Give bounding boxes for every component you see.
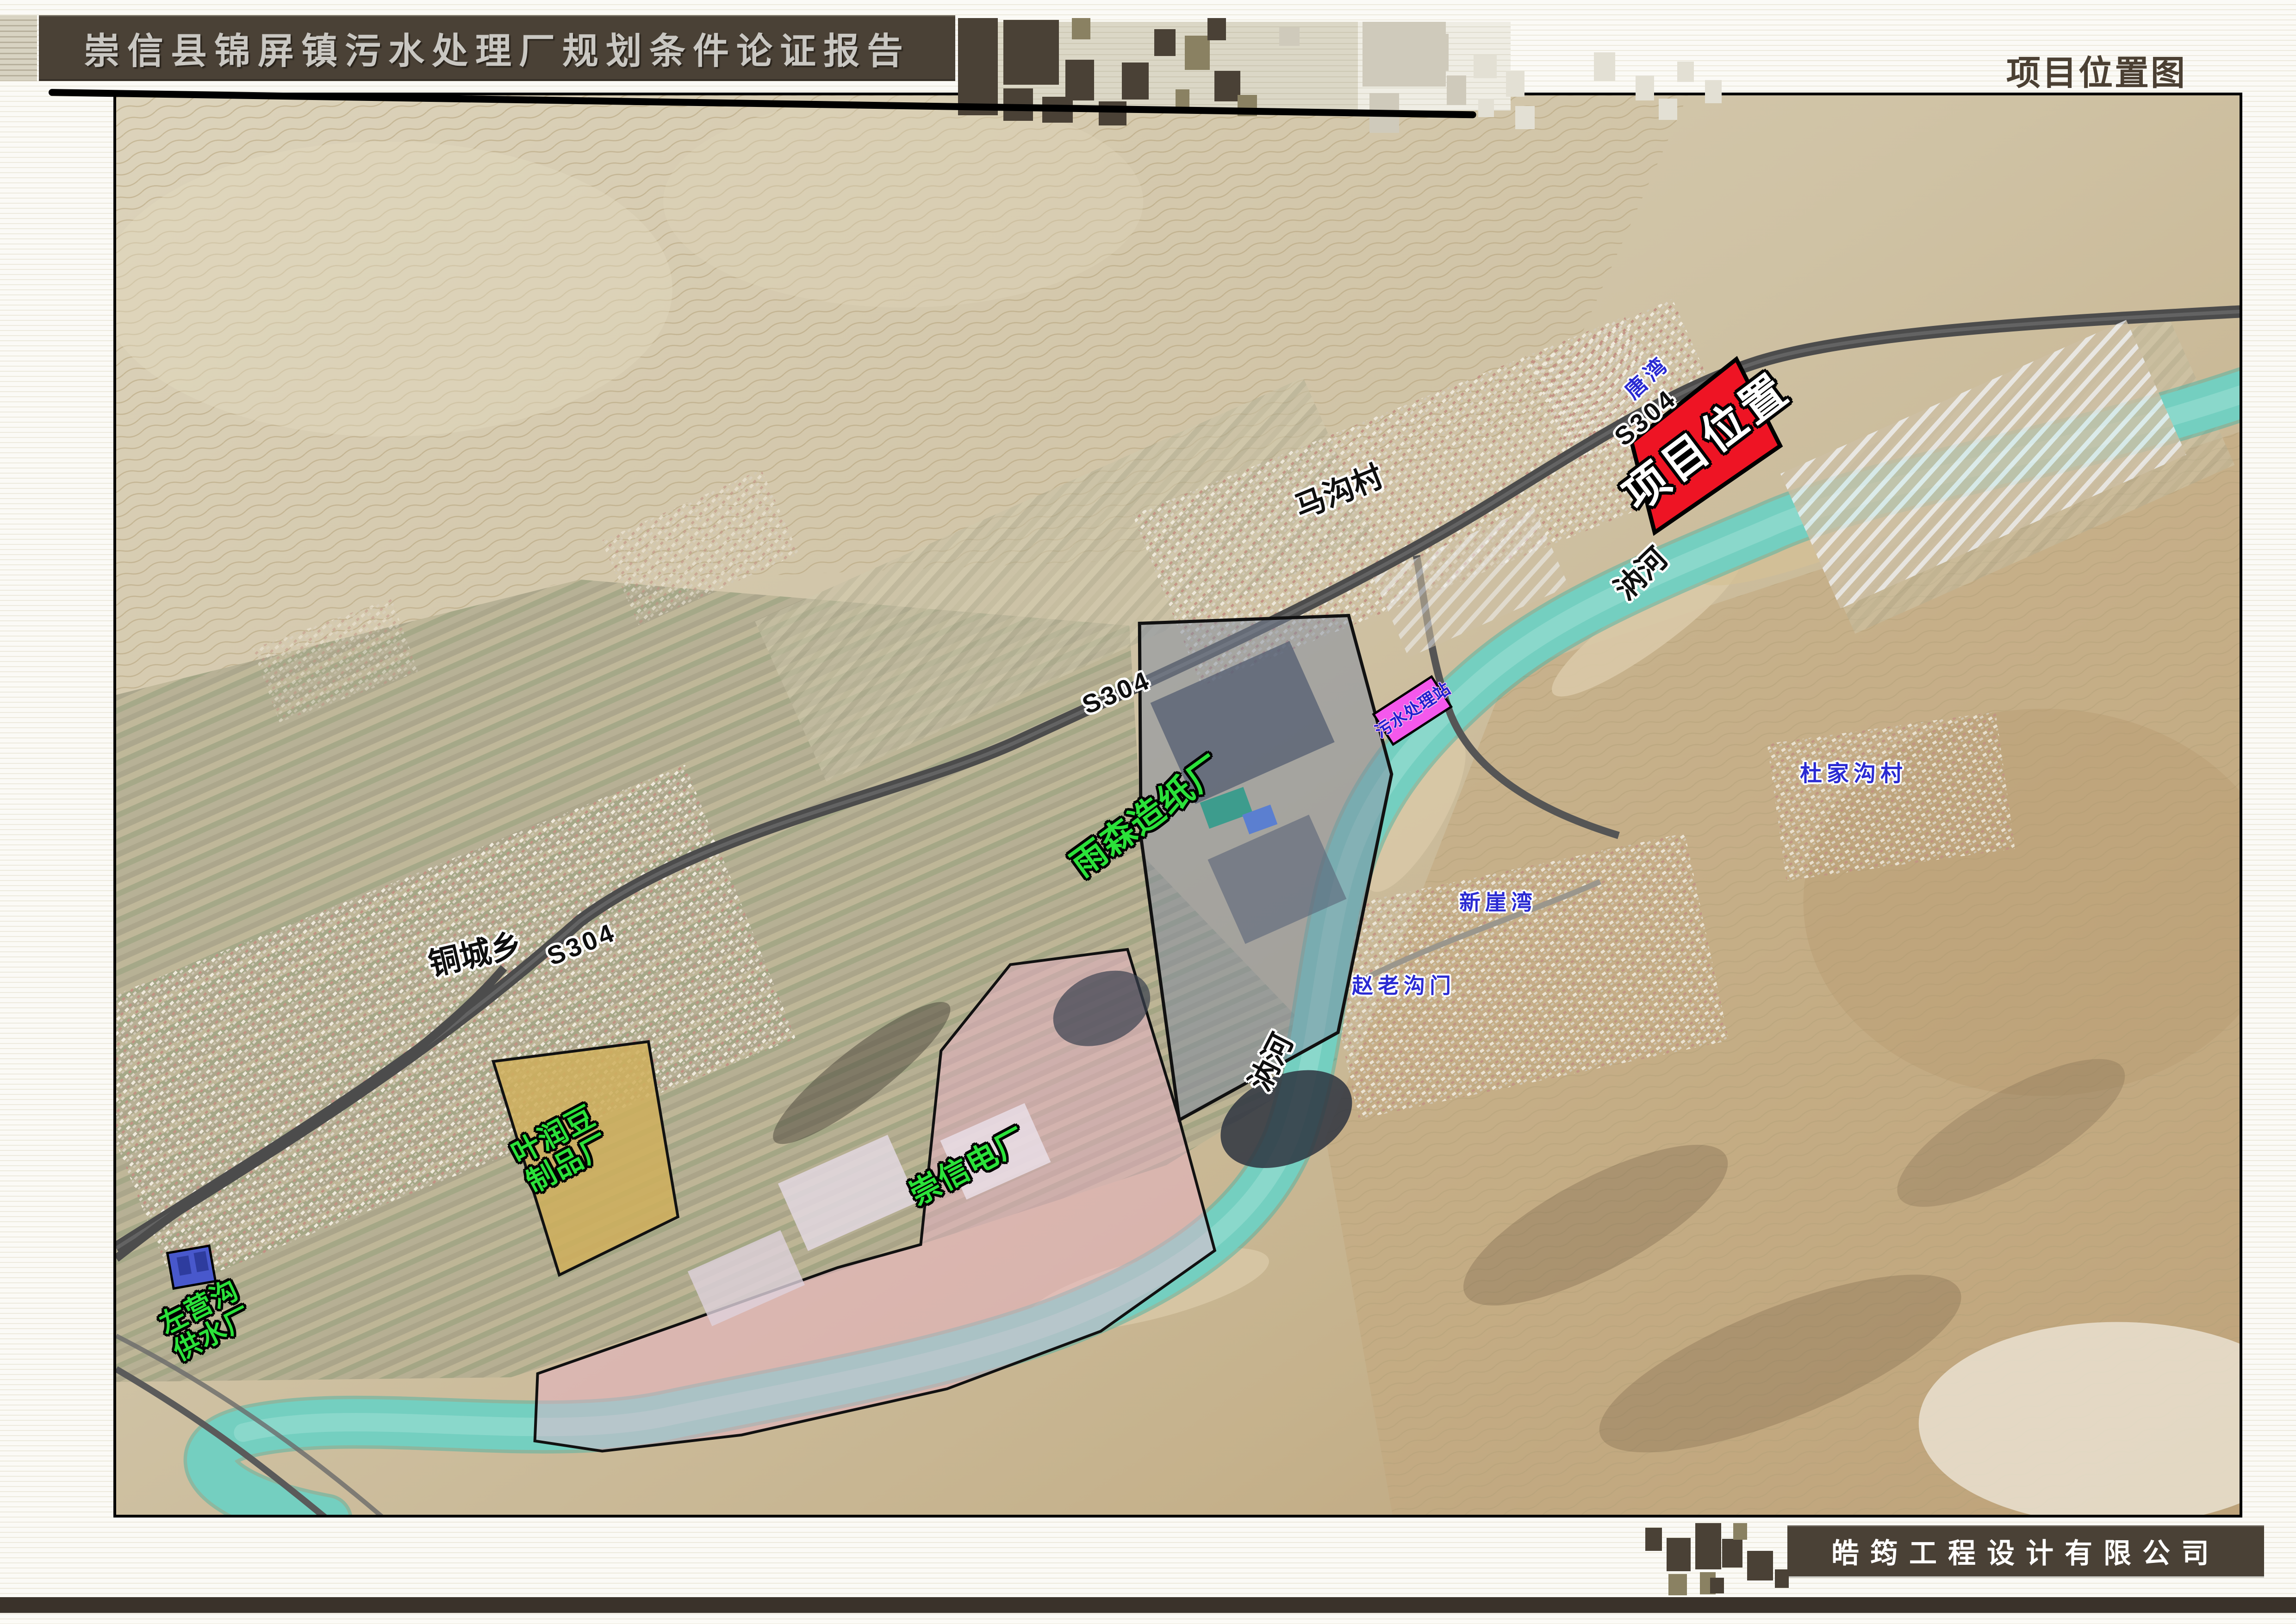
company-name: 皓筠工程设计有限公司 [1831,1531,2220,1571]
mosaic-square [1668,1574,1687,1595]
mosaic-square [1645,1528,1662,1551]
plateau-highlight [116,142,672,437]
mosaic-square [1154,29,1176,56]
mosaic-square [1003,20,1059,85]
mosaic-square [1747,1551,1773,1580]
mosaic-square [1710,1578,1724,1593]
mosaic-square [1722,1539,1742,1568]
plateau-highlight [663,95,1143,307]
mosaic-square [1705,80,1722,103]
page-title: 项目位置图 [1999,45,2194,95]
mosaic-square [1437,34,1449,71]
mosaic-square [1176,89,1189,107]
mosaic-square [1733,1523,1747,1540]
mosaic-square [1065,60,1094,100]
mosaic-square [1363,22,1446,87]
report-page: 崇信县锦屏镇污水处理厂规划条件论证报告 项目位置图 [0,0,2296,1624]
mosaic-square [1072,18,1090,39]
bottom-strip-decor [0,1597,2296,1613]
report-title: 崇信县锦屏镇污水处理厂规划条件论证报告 [84,22,910,74]
mosaic-square [1659,99,1677,120]
mosaic-square [1636,75,1654,100]
mosaic-square [1207,18,1226,40]
mosaic-square [1667,1538,1691,1571]
company-bar: 皓筠工程设计有限公司 [1787,1525,2264,1576]
mosaic-square [1279,27,1300,46]
mosaic-square [1677,62,1694,82]
project-location-map [113,93,2242,1518]
mosaic-square [1478,99,1494,117]
header-corner-decor [0,15,37,81]
satellite-map [116,95,2240,1515]
report-title-bar: 崇信县锦屏镇污水处理厂规划条件论证报告 [39,15,955,81]
mosaic-square [958,18,998,115]
mosaic-square [1775,1569,1789,1588]
mosaic-square [1447,75,1466,105]
mosaic-square [1214,71,1240,101]
mosaic-square [1506,71,1524,97]
mosaic-square [1594,52,1615,81]
mosaic-square [1474,55,1497,78]
mosaic-square [1185,36,1210,70]
footer-mosaic-decor [1641,1518,1793,1586]
mosaic-square [1122,62,1149,100]
mosaic-square [1515,106,1535,129]
mosaic-square [1695,1523,1721,1569]
